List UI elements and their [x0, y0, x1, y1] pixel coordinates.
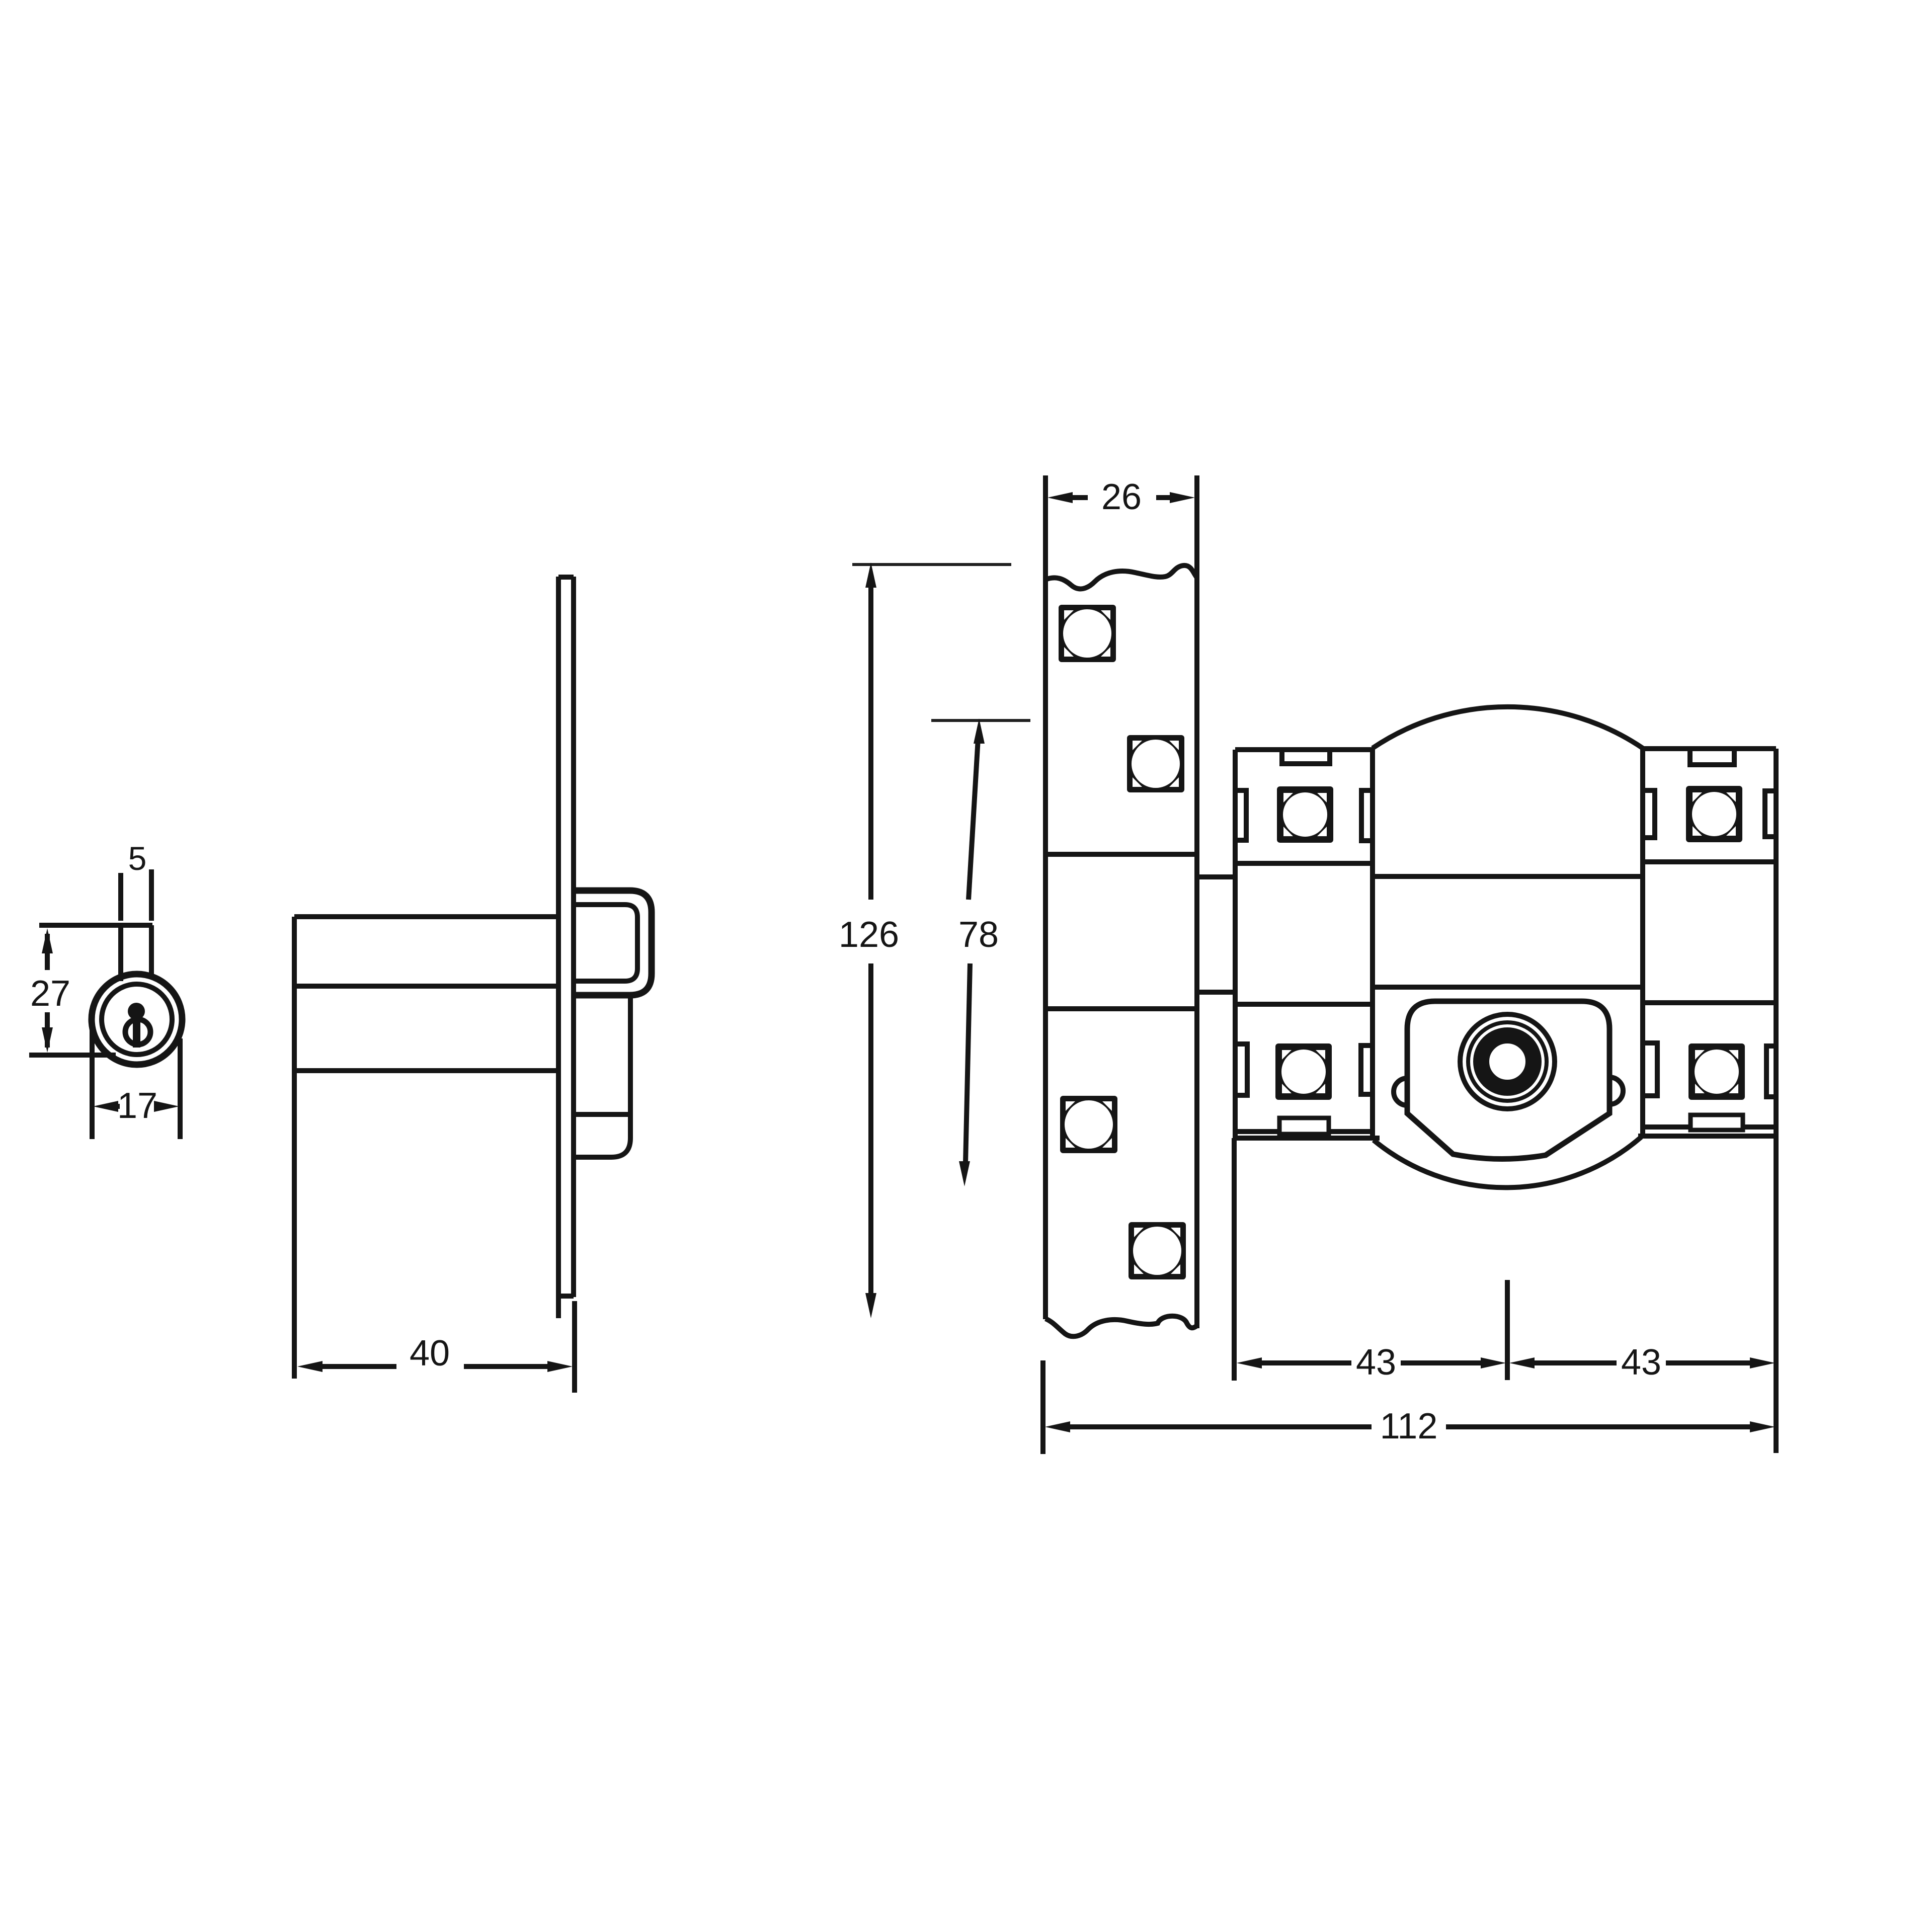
svg-text:112: 112 [1380, 1406, 1438, 1446]
svg-text:5: 5 [128, 840, 147, 877]
svg-text:26: 26 [1101, 477, 1142, 517]
svg-text:40: 40 [410, 1333, 450, 1374]
svg-text:27: 27 [30, 974, 70, 1014]
svg-text:126: 126 [839, 915, 899, 955]
svg-text:17: 17 [117, 1086, 157, 1126]
svg-text:43: 43 [1356, 1342, 1396, 1383]
svg-text:78: 78 [958, 915, 999, 955]
svg-text:43: 43 [1621, 1342, 1661, 1383]
